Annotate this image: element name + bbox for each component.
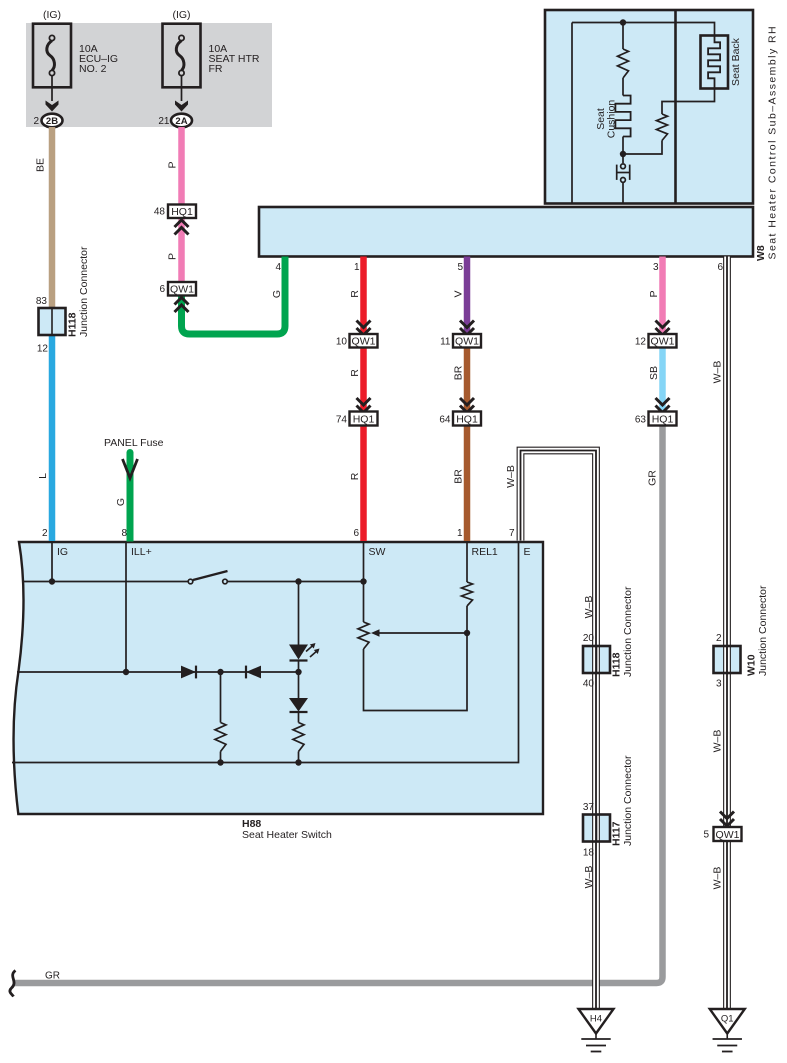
svg-text:Cushion: Cushion: [606, 100, 618, 139]
svg-text:E: E: [524, 546, 531, 558]
svg-text:HQ1: HQ1: [652, 413, 674, 425]
svg-text:12: 12: [37, 344, 49, 355]
svg-text:L: L: [37, 473, 49, 479]
svg-text:12: 12: [635, 337, 647, 348]
svg-text:HQ1: HQ1: [456, 413, 478, 425]
svg-text:20: 20: [583, 633, 595, 644]
svg-text:G: G: [271, 290, 283, 298]
svg-text:21: 21: [158, 116, 170, 127]
svg-text:R: R: [349, 369, 361, 377]
svg-text:PANEL Fuse: PANEL Fuse: [104, 437, 164, 449]
svg-text:HQ1: HQ1: [353, 413, 375, 425]
svg-text:11: 11: [440, 337, 451, 348]
svg-text:Seat Heater Switch: Seat Heater Switch: [242, 829, 332, 841]
svg-text:QW1: QW1: [651, 336, 675, 348]
svg-text:R: R: [349, 290, 361, 298]
svg-text:NO. 2: NO. 2: [79, 63, 107, 75]
svg-text:H118: H118: [611, 652, 623, 677]
svg-text:GR: GR: [647, 470, 659, 486]
svg-text:W–B: W–B: [712, 361, 724, 384]
svg-text:QW1: QW1: [352, 336, 376, 348]
svg-text:5: 5: [703, 830, 709, 841]
svg-text:P: P: [167, 161, 179, 168]
svg-text:83: 83: [36, 296, 48, 307]
svg-text:2A: 2A: [175, 116, 187, 127]
svg-text:Seat Back: Seat Back: [730, 37, 742, 86]
svg-text:W–B: W–B: [712, 730, 724, 753]
svg-text:SB: SB: [648, 366, 660, 380]
svg-text:(IG): (IG): [43, 9, 61, 21]
svg-text:IG: IG: [57, 546, 68, 558]
svg-text:64: 64: [439, 415, 451, 426]
svg-text:6: 6: [159, 284, 165, 295]
svg-text:5: 5: [457, 262, 463, 273]
svg-text:G: G: [115, 498, 127, 506]
svg-text:6: 6: [717, 262, 723, 273]
svg-text:37: 37: [583, 802, 595, 813]
svg-text:QW1: QW1: [455, 336, 479, 348]
svg-text:1: 1: [457, 528, 463, 539]
svg-text:Q1: Q1: [721, 1014, 734, 1025]
svg-text:Junction Connector: Junction Connector: [622, 755, 634, 846]
svg-text:2: 2: [42, 528, 48, 539]
svg-text:6: 6: [353, 528, 359, 539]
svg-text:W–B: W–B: [583, 866, 595, 889]
svg-text:QW1: QW1: [170, 284, 194, 296]
svg-text:3: 3: [716, 679, 722, 690]
svg-text:FR: FR: [209, 63, 223, 75]
svg-text:GR: GR: [45, 971, 60, 982]
svg-text:10: 10: [336, 337, 348, 348]
svg-text:SW: SW: [369, 546, 386, 558]
svg-text:Junction Connector: Junction Connector: [622, 586, 634, 677]
svg-text:P: P: [648, 290, 660, 297]
svg-text:Junction Connector: Junction Connector: [757, 585, 769, 676]
svg-text:R: R: [349, 472, 361, 480]
svg-text:W–B: W–B: [583, 596, 595, 619]
svg-text:W10: W10: [746, 654, 758, 676]
svg-text:BR: BR: [453, 365, 465, 380]
svg-text:63: 63: [635, 415, 647, 426]
svg-text:P: P: [167, 253, 179, 260]
svg-text:BR: BR: [453, 469, 465, 484]
svg-text:HQ1: HQ1: [171, 206, 193, 218]
svg-text:(IG): (IG): [172, 9, 190, 21]
svg-text:QW1: QW1: [716, 829, 740, 841]
svg-text:1: 1: [354, 262, 360, 273]
svg-text:W–B: W–B: [505, 465, 517, 488]
svg-text:74: 74: [336, 415, 348, 426]
svg-text:V: V: [453, 290, 465, 297]
svg-text:2: 2: [716, 633, 722, 644]
svg-text:Seat Heater Control Sub–Assemb: Seat Heater Control Sub–Assembly RH: [767, 25, 779, 260]
svg-text:2B: 2B: [46, 116, 58, 127]
svg-text:40: 40: [583, 679, 595, 690]
svg-text:W–B: W–B: [712, 867, 724, 890]
svg-text:48: 48: [154, 207, 166, 218]
svg-text:H117: H117: [611, 821, 623, 846]
svg-text:2: 2: [33, 116, 39, 127]
svg-text:W8: W8: [755, 245, 767, 261]
svg-text:3: 3: [653, 262, 659, 273]
svg-text:H4: H4: [590, 1014, 602, 1025]
svg-text:18: 18: [583, 848, 595, 859]
svg-text:7: 7: [509, 528, 515, 539]
svg-text:4: 4: [275, 262, 281, 273]
svg-text:BE: BE: [35, 158, 47, 172]
svg-text:8: 8: [121, 528, 127, 539]
svg-text:H118: H118: [67, 312, 79, 337]
svg-text:Junction Connector: Junction Connector: [78, 246, 90, 337]
svg-text:REL1: REL1: [472, 546, 498, 558]
svg-text:ILL+: ILL+: [131, 546, 152, 558]
